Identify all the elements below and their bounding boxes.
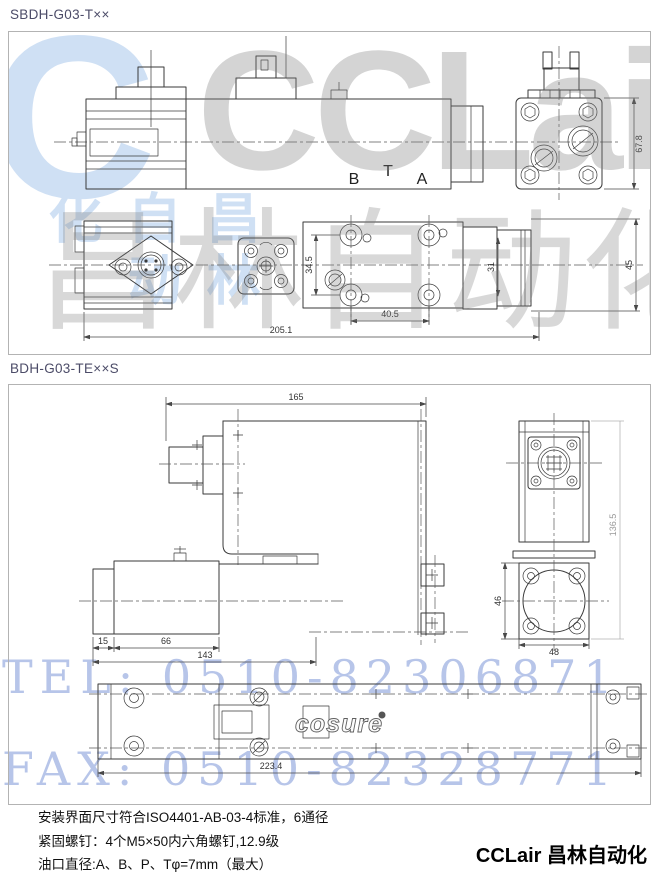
- s2-side-view: 15 66 143: [79, 546, 469, 666]
- dim-48: 48: [549, 647, 559, 657]
- datasheet-page: TEL: 0510-82306871 FAX: 0510-82328771 SB…: [0, 0, 655, 877]
- footer-brand: CCLair 昌林自动化: [476, 839, 647, 868]
- dim-15: 15: [98, 636, 108, 646]
- section1-panel: C 昌林自动化: [8, 31, 651, 355]
- note-port-diameter: 油口直径:A、B、P、Tφ=7mm（最大）: [38, 853, 328, 877]
- section2-panel: 165: [8, 384, 651, 805]
- s2-bottom-view: cosure 223.4: [89, 684, 647, 777]
- section1-title: SBDH-G03-T××: [10, 7, 110, 22]
- note-screws: 紧固螺钉：4个M5×50内六角螺钉,12.9级: [38, 830, 328, 854]
- section2-title: BDH-G03-TE××S: [10, 361, 119, 376]
- dim-46: 46: [493, 596, 503, 606]
- dim-165: 165: [288, 392, 303, 402]
- note-standard: 安装界面尺寸符合ISO4401-AB-03-4标准，6通径: [38, 806, 328, 830]
- dim-136-5: 136.5: [608, 514, 618, 537]
- s2-end-view: 46 48 136.5: [493, 413, 624, 657]
- brand-latin-watermark: CCLair: [197, 31, 651, 205]
- section2-drawing: 165: [9, 385, 650, 804]
- logo-trademark-dot: [379, 712, 386, 719]
- dim-66: 66: [161, 636, 171, 646]
- dim-223-4: 223.4: [260, 761, 283, 771]
- brand-cjk-gray-watermark: 昌林自动化: [37, 200, 651, 345]
- dim-143: 143: [197, 650, 212, 660]
- installation-notes: 安装界面尺寸符合ISO4401-AB-03-4标准，6通径 紧固螺钉：4个M5×…: [38, 806, 328, 877]
- cosure-logo: cosure: [295, 710, 383, 738]
- s2-top-view: 165: [159, 392, 426, 645]
